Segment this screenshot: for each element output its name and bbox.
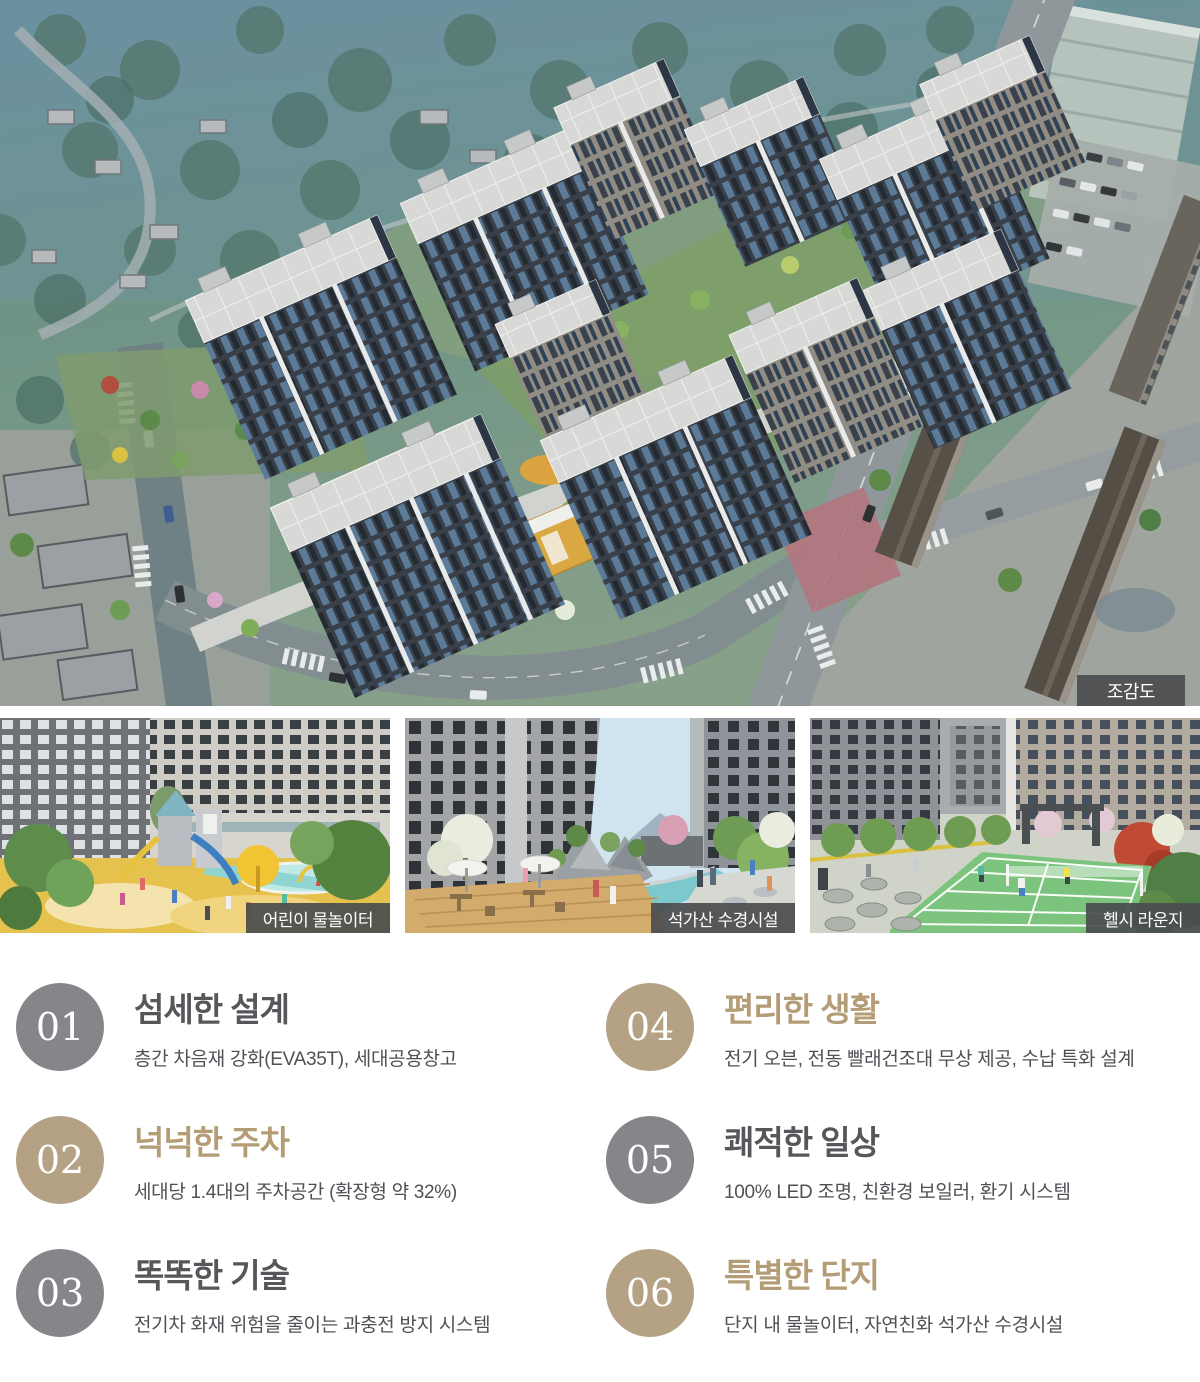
feature-item-01: 01 섬세한 설계 층간 차음재 강화(EVA35T), 세대공용창고 bbox=[16, 983, 606, 1071]
feature-description: 세대당 1.4대의 주차공간 (확장형 약 32%) bbox=[134, 1177, 457, 1204]
thumbnail-caption-badge: 어린이 물놀이터 bbox=[246, 903, 390, 933]
thumbnail-caption-badge: 헬시 라운지 bbox=[1086, 903, 1200, 933]
feature-title: 섬세한 설계 bbox=[134, 983, 457, 1031]
feature-description: 단지 내 물놀이터, 자연친화 석가산 수경시설 bbox=[724, 1310, 1063, 1337]
thumbnail-water-feature: 석가산 수경시설 bbox=[405, 718, 795, 933]
aerial-view-section: .roof{fill:url(#roofG);stroke:#f2f2f0;st… bbox=[0, 0, 1200, 706]
feature-title: 똑똑한 기술 bbox=[134, 1249, 490, 1297]
feature-number-badge: 01 bbox=[16, 983, 104, 1071]
feature-item-05: 05 쾌적한 일상 100% LED 조명, 친환경 보일러, 환기 시스템 bbox=[606, 1116, 1200, 1204]
feature-title: 쾌적한 일상 bbox=[724, 1116, 1071, 1164]
thumbnail-healthy-lounge: 헬시 라운지 bbox=[810, 718, 1200, 933]
feature-list: 01 섬세한 설계 층간 차음재 강화(EVA35T), 세대공용창고 02 넉… bbox=[0, 933, 1200, 1382]
water-playground-illustration bbox=[0, 718, 390, 933]
feature-description: 전기차 화재 위험을 줄이는 과충전 방지 시스템 bbox=[134, 1310, 490, 1337]
feature-title: 넉넉한 주차 bbox=[134, 1116, 457, 1164]
aerial-rendering-illustration: .roof{fill:url(#roofG);stroke:#f2f2f0;st… bbox=[0, 0, 1200, 706]
feature-description: 전기 오븐, 전동 빨래건조대 무상 제공, 수납 특화 설계 bbox=[724, 1044, 1135, 1071]
feature-number-badge: 05 bbox=[606, 1116, 694, 1204]
feature-item-04: 04 편리한 생활 전기 오븐, 전동 빨래건조대 무상 제공, 수납 특화 설… bbox=[606, 983, 1200, 1071]
feature-title: 편리한 생활 bbox=[724, 983, 1135, 1031]
feature-item-06: 06 특별한 단지 단지 내 물놀이터, 자연친화 석가산 수경시설 bbox=[606, 1249, 1200, 1337]
feature-number-badge: 06 bbox=[606, 1249, 694, 1337]
feature-title: 특별한 단지 bbox=[724, 1249, 1063, 1297]
healthy-lounge-illustration bbox=[810, 718, 1200, 933]
feature-column-right: 04 편리한 생활 전기 오븐, 전동 빨래건조대 무상 제공, 수납 특화 설… bbox=[606, 983, 1200, 1382]
aerial-view-caption-badge: 조감도 bbox=[1077, 675, 1185, 706]
feature-number-badge: 04 bbox=[606, 983, 694, 1071]
thumbnail-water-playground: 어린이 물놀이터 bbox=[0, 718, 390, 933]
feature-column-left: 01 섬세한 설계 층간 차음재 강화(EVA35T), 세대공용창고 02 넉… bbox=[16, 983, 606, 1382]
feature-item-03: 03 똑똑한 기술 전기차 화재 위험을 줄이는 과충전 방지 시스템 bbox=[16, 1249, 606, 1337]
facility-thumbnails-row: 어린이 물놀이터 bbox=[0, 718, 1200, 933]
water-feature-illustration bbox=[405, 718, 795, 933]
feature-description: 100% LED 조명, 친환경 보일러, 환기 시스템 bbox=[724, 1177, 1071, 1204]
feature-description: 층간 차음재 강화(EVA35T), 세대공용창고 bbox=[134, 1044, 457, 1071]
thumbnail-caption-badge: 석가산 수경시설 bbox=[651, 903, 795, 933]
feature-number-badge: 02 bbox=[16, 1116, 104, 1204]
feature-number-badge: 03 bbox=[16, 1249, 104, 1337]
feature-item-02: 02 넉넉한 주차 세대당 1.4대의 주차공간 (확장형 약 32%) bbox=[16, 1116, 606, 1204]
